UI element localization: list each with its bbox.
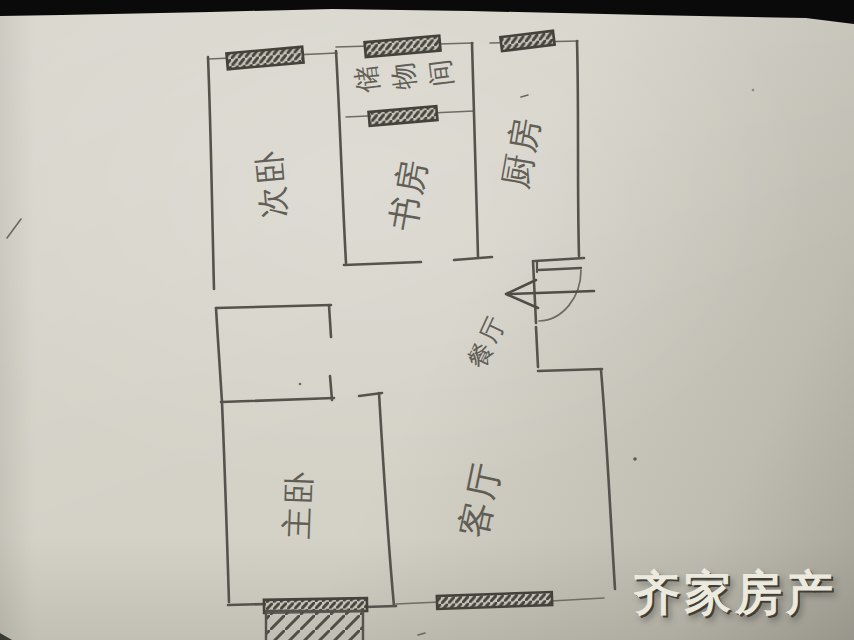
speck-3: [752, 89, 755, 92]
wall-entry-bottom: [538, 369, 602, 371]
wall-entry-lower: [536, 327, 538, 367]
window-chuwujian: [365, 36, 441, 57]
window-keting: [437, 592, 552, 609]
door-swing-arc: [539, 270, 581, 321]
window-chufang: [500, 31, 554, 51]
arrow-shaft: [510, 291, 594, 294]
wall-bottom-left-b: [365, 606, 396, 607]
wall-divider-ciwo-shufang: [336, 51, 346, 263]
wall-keting-bottom-right: [551, 598, 604, 601]
wall-box-left: [216, 308, 222, 402]
speck-1: [633, 457, 637, 461]
window-shufang: [369, 106, 438, 126]
wall-zhuwo-left: [222, 403, 229, 602]
wall-box-top: [216, 305, 331, 308]
walls: [208, 41, 615, 607]
balcony-hatched: [266, 611, 363, 640]
wall-keting-right: [601, 370, 615, 589]
wall-chufang-right: [577, 41, 579, 256]
speck-2: [299, 383, 302, 386]
wall-shufang-bottom-right: [454, 257, 492, 260]
floorplan-photo: 次卧 书房 储物间 厨房 餐厅 主卧 客厅 齐家房产: [0, 0, 854, 640]
stray-dash-kitchen: [521, 95, 528, 97]
entry-arrow-icon: [506, 280, 594, 308]
wall-ciwo-left: [208, 57, 214, 289]
wall-bottom-left-a: [228, 604, 267, 605]
wall-box-right-lower: [330, 376, 332, 400]
wall-zhuwo-top: [221, 398, 334, 402]
wall-keting-bottom-left: [396, 602, 440, 604]
room-label-ciwo: 次卧: [247, 146, 297, 220]
wall-box-right-upper: [329, 305, 331, 337]
wall-shufang-bottom-left: [344, 262, 421, 265]
wall-divider-zhuwo-keting: [379, 393, 394, 606]
wall-entry-top: [535, 258, 584, 261]
wall-divider-shufang-chufang: [472, 43, 478, 257]
floorplan-sketch: [0, 0, 854, 640]
window-ciwo: [226, 47, 303, 70]
stray-dash-bottom: [418, 633, 425, 635]
door-leaf: [539, 268, 581, 270]
stray-tick-left-edge: [7, 219, 21, 238]
room-label-zhuwo: 主卧: [276, 468, 322, 539]
watermark-agency: 齐家房产: [633, 562, 837, 625]
stray-marks: [7, 89, 754, 635]
